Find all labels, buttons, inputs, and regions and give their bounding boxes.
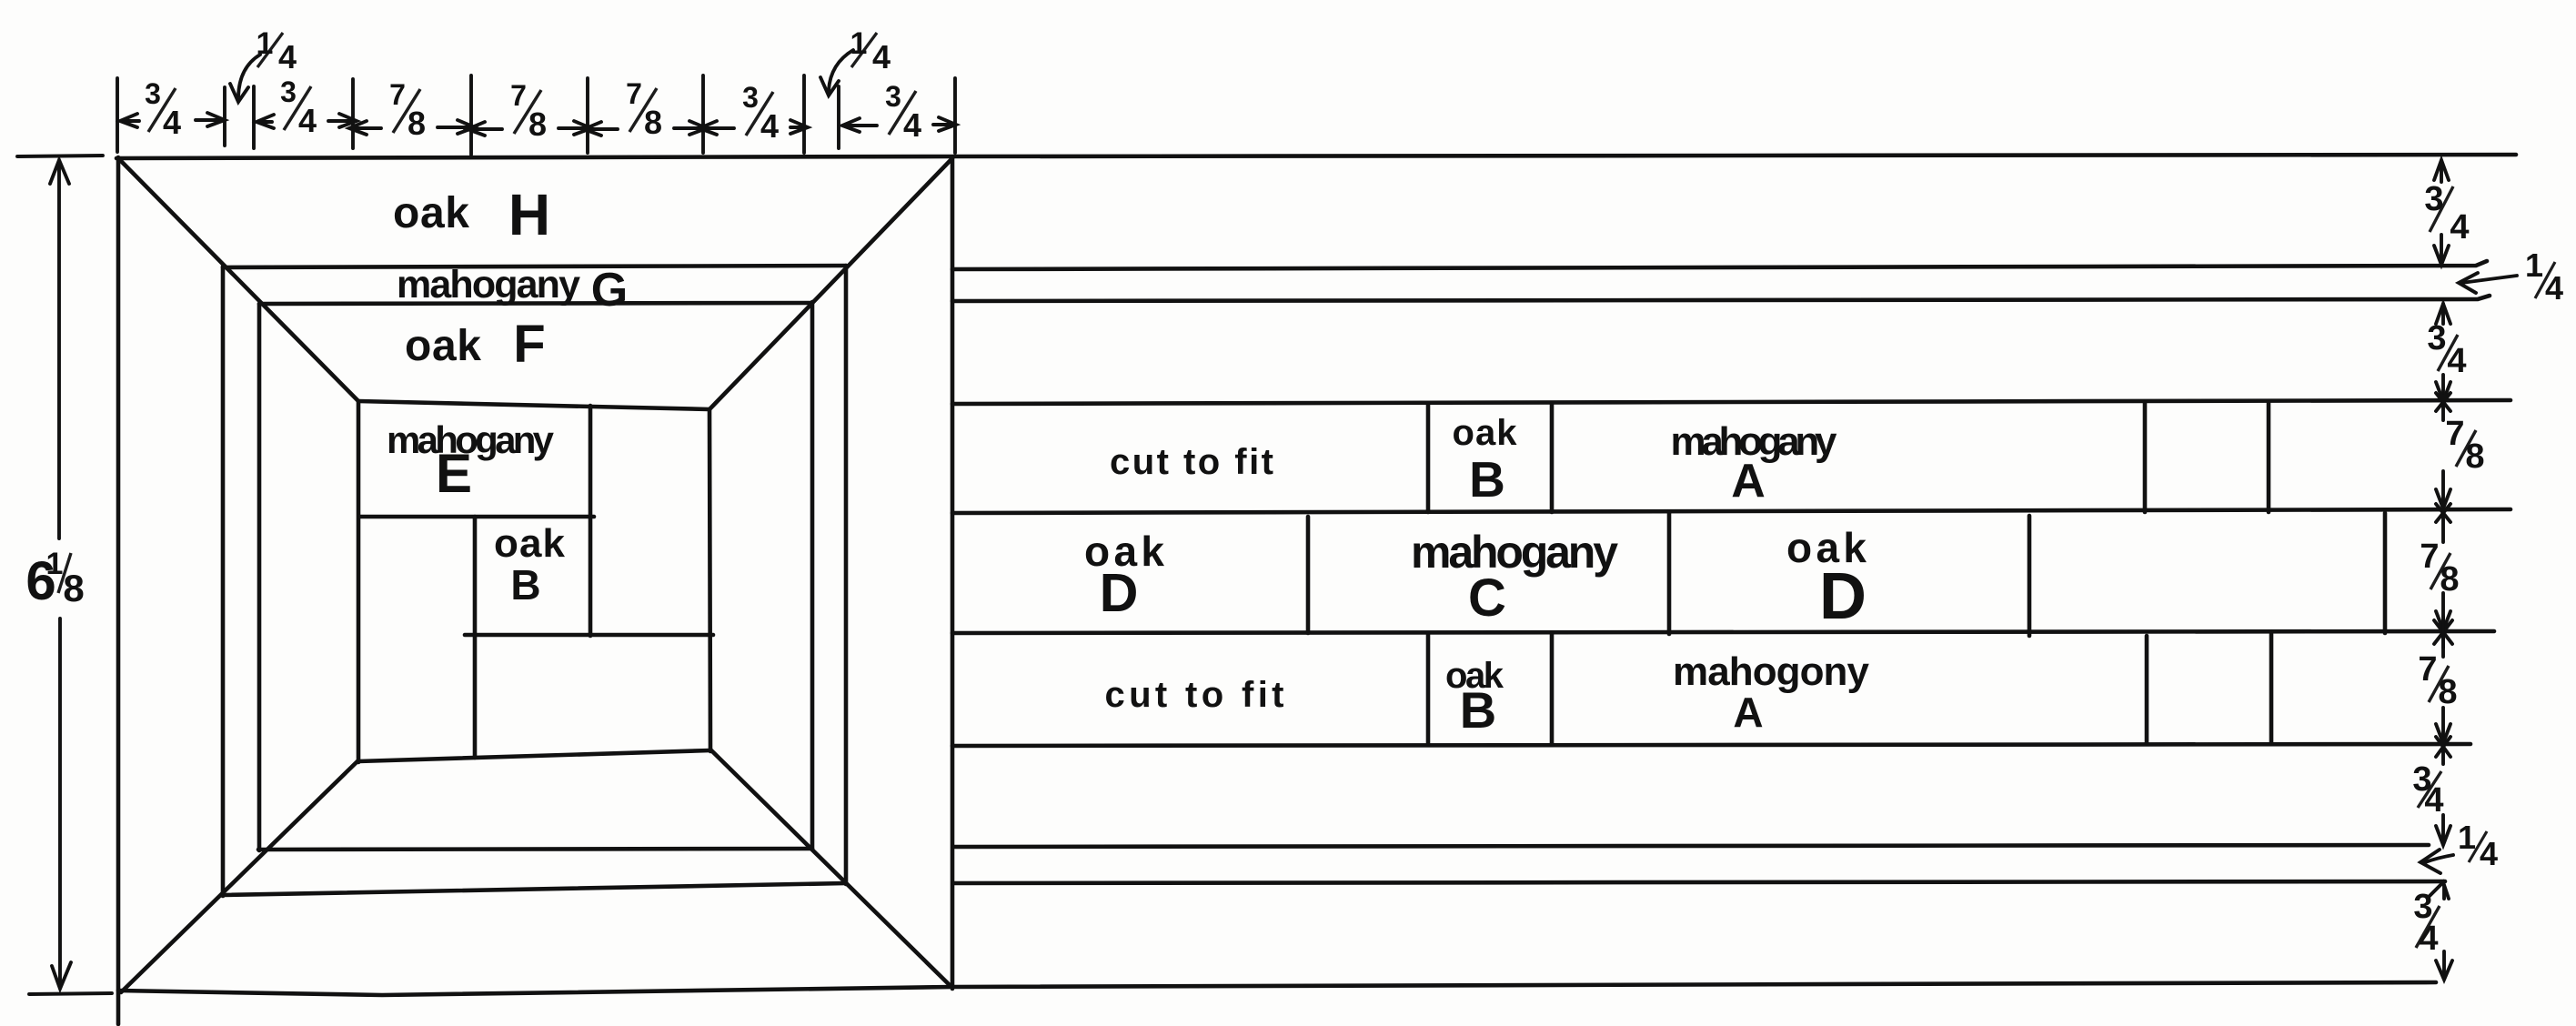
svg-text:4: 4 — [2447, 342, 2466, 380]
svg-text:A: A — [1731, 455, 1766, 508]
svg-text:8: 8 — [2438, 673, 2457, 711]
svg-text:3: 3 — [885, 80, 901, 113]
svg-text:7: 7 — [2418, 650, 2437, 689]
svg-text:B: B — [1460, 681, 1496, 739]
svg-text:mahogany: mahogany — [397, 263, 580, 307]
svg-text:C: C — [1468, 568, 1506, 628]
svg-text:B: B — [1469, 451, 1505, 508]
svg-text:8: 8 — [63, 567, 84, 609]
svg-text:oak: oak — [494, 521, 566, 566]
svg-text:cut to fit: cut to fit — [1110, 442, 1273, 482]
svg-text:7: 7 — [626, 77, 642, 110]
svg-text:1: 1 — [2525, 246, 2543, 284]
svg-text:1: 1 — [850, 26, 868, 61]
svg-text:4: 4 — [2424, 781, 2443, 820]
svg-text:1: 1 — [46, 547, 64, 581]
svg-text:7: 7 — [510, 79, 527, 112]
svg-text:4: 4 — [872, 38, 891, 75]
svg-text:oak: oak — [393, 189, 469, 237]
svg-text:7: 7 — [389, 78, 406, 111]
svg-text:3: 3 — [2427, 319, 2446, 357]
svg-text:B: B — [510, 561, 540, 609]
svg-text:mahogony: mahogony — [1673, 649, 1870, 694]
svg-text:4: 4 — [278, 38, 297, 75]
svg-text:7: 7 — [2420, 538, 2439, 576]
svg-text:4: 4 — [163, 104, 181, 141]
svg-text:4: 4 — [903, 106, 921, 144]
svg-text:G: G — [591, 264, 628, 317]
svg-text:4: 4 — [2545, 269, 2563, 307]
svg-text:8: 8 — [408, 105, 426, 142]
svg-text:cut to fit: cut to fit — [1105, 675, 1284, 715]
svg-text:H: H — [508, 182, 550, 247]
svg-text:4: 4 — [2480, 835, 2498, 872]
svg-text:D: D — [1100, 563, 1139, 623]
svg-text:4: 4 — [298, 102, 317, 139]
svg-text:8: 8 — [528, 106, 547, 143]
svg-text:4: 4 — [2419, 920, 2438, 958]
svg-text:3: 3 — [2424, 180, 2443, 218]
svg-text:7: 7 — [2445, 415, 2464, 453]
svg-text:1: 1 — [257, 26, 274, 61]
svg-text:8: 8 — [644, 104, 662, 141]
svg-text:3: 3 — [145, 77, 161, 110]
svg-text:1: 1 — [2458, 819, 2476, 856]
svg-text:oak: oak — [405, 322, 481, 370]
svg-text:8: 8 — [2465, 438, 2484, 476]
svg-text:F: F — [513, 315, 545, 374]
svg-text:4: 4 — [2450, 208, 2469, 246]
svg-text:3: 3 — [742, 81, 759, 114]
svg-text:3: 3 — [280, 75, 297, 108]
svg-text:oak: oak — [1453, 413, 1518, 453]
svg-text:mahogany: mahogany — [1411, 527, 1618, 578]
svg-text:D: D — [1819, 560, 1867, 633]
svg-text:8: 8 — [2440, 560, 2459, 598]
svg-text:A: A — [1733, 689, 1763, 736]
svg-text:E: E — [436, 443, 472, 504]
svg-text:4: 4 — [760, 107, 779, 145]
